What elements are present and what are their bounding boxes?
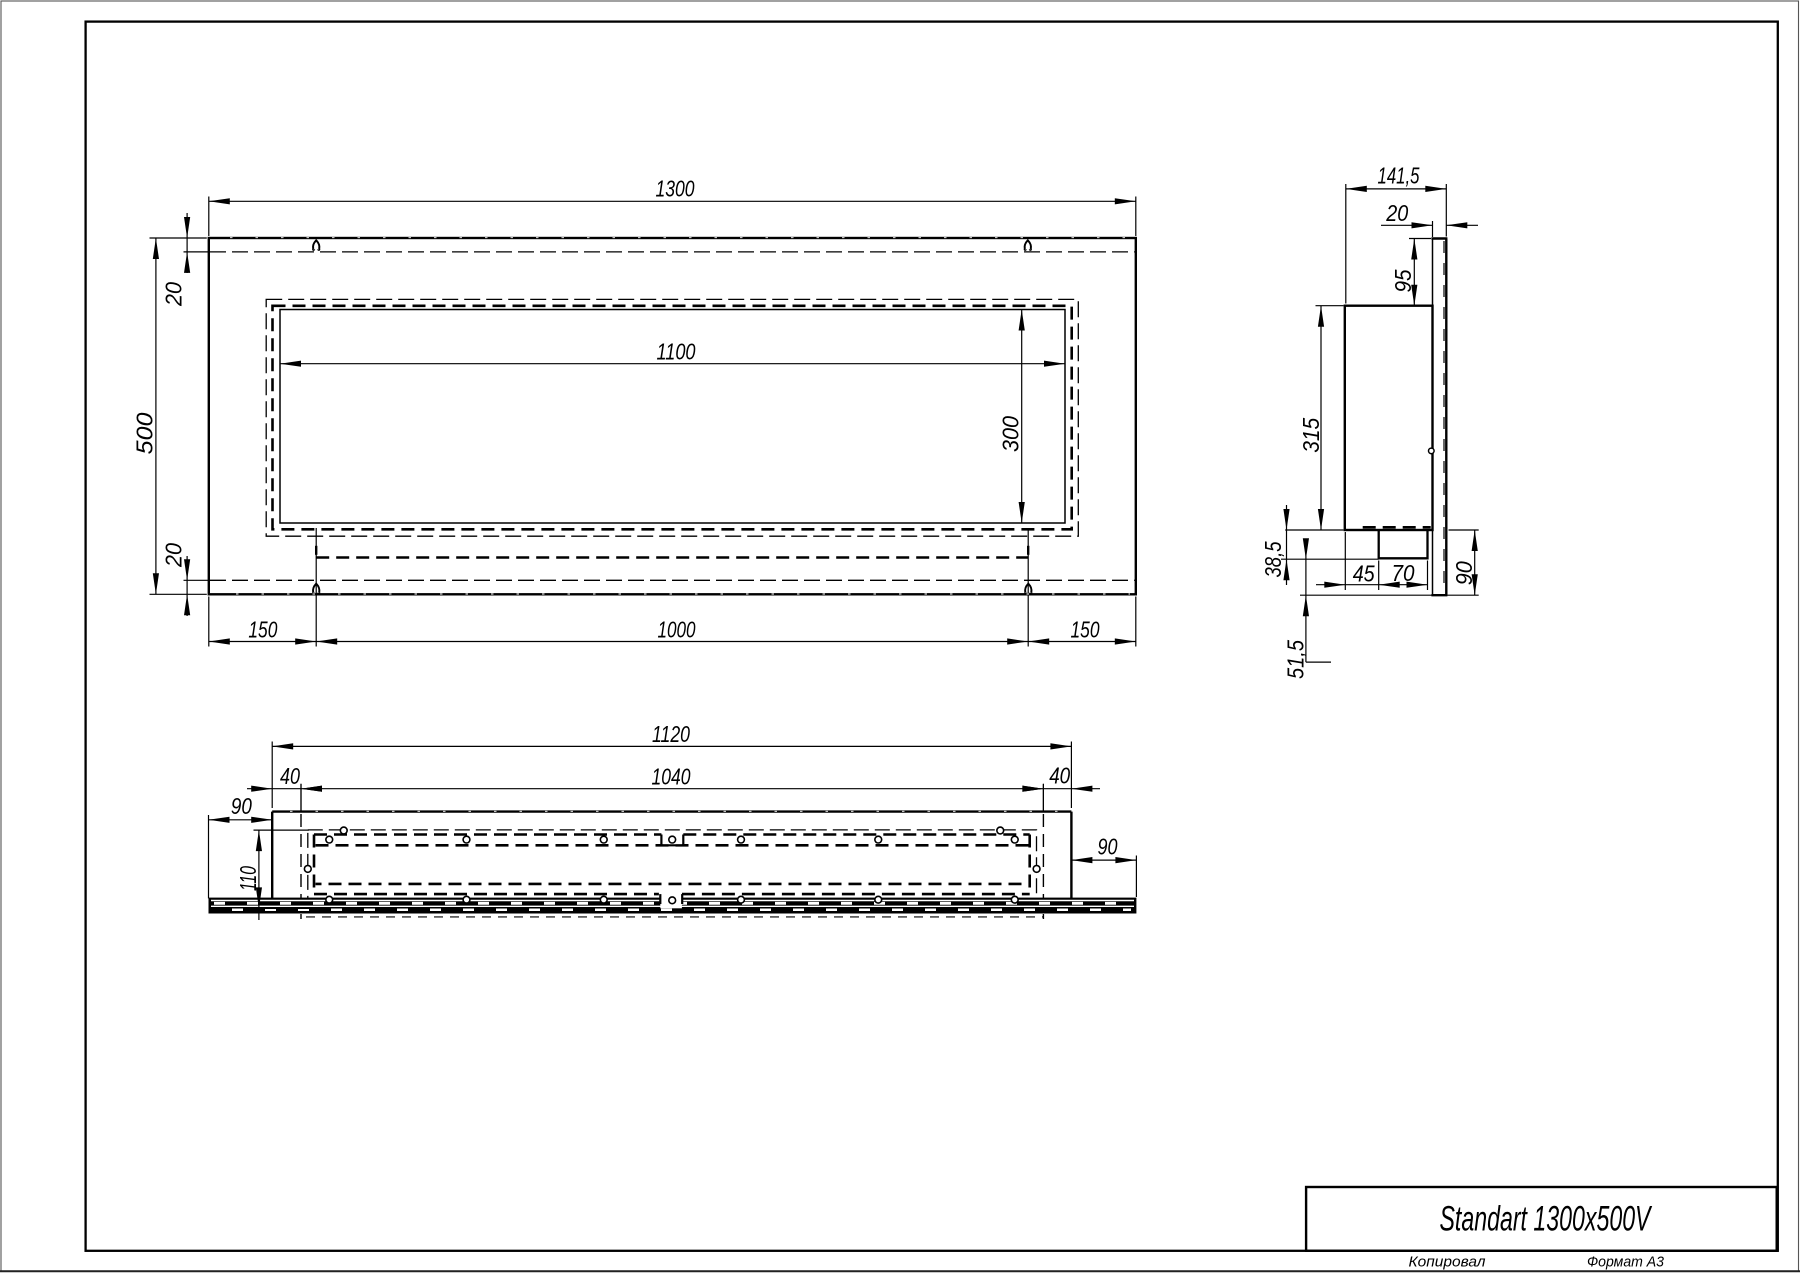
svg-text:90: 90 — [1098, 834, 1118, 860]
svg-text:141,5: 141,5 — [1378, 163, 1420, 189]
svg-text:150: 150 — [1071, 616, 1100, 642]
svg-text:51,5: 51,5 — [1283, 640, 1309, 679]
svg-text:500: 500 — [131, 412, 157, 454]
svg-text:Формат А3: Формат А3 — [1587, 1254, 1664, 1270]
svg-text:110: 110 — [235, 866, 261, 891]
svg-text:45: 45 — [1353, 561, 1375, 587]
svg-text:1040: 1040 — [652, 763, 691, 789]
svg-text:20: 20 — [1385, 200, 1408, 226]
svg-text:90: 90 — [1451, 561, 1477, 585]
svg-text:90: 90 — [231, 793, 252, 819]
svg-text:1000: 1000 — [658, 616, 696, 642]
svg-text:1100: 1100 — [657, 338, 696, 364]
svg-text:Копировал: Копировал — [1409, 1254, 1486, 1270]
svg-text:95: 95 — [1390, 269, 1416, 292]
svg-text:315: 315 — [1298, 418, 1324, 453]
svg-text:Standart 1300x500V: Standart 1300x500V — [1440, 1200, 1653, 1239]
svg-text:1300: 1300 — [656, 175, 695, 201]
svg-text:20: 20 — [161, 282, 187, 307]
svg-text:20: 20 — [161, 543, 187, 568]
svg-text:300: 300 — [998, 416, 1024, 452]
svg-text:40: 40 — [1049, 763, 1070, 789]
svg-text:1120: 1120 — [652, 721, 690, 747]
svg-text:40: 40 — [280, 763, 300, 789]
svg-text:38,5: 38,5 — [1260, 541, 1286, 577]
svg-text:150: 150 — [248, 616, 277, 642]
svg-text:70: 70 — [1392, 560, 1415, 586]
